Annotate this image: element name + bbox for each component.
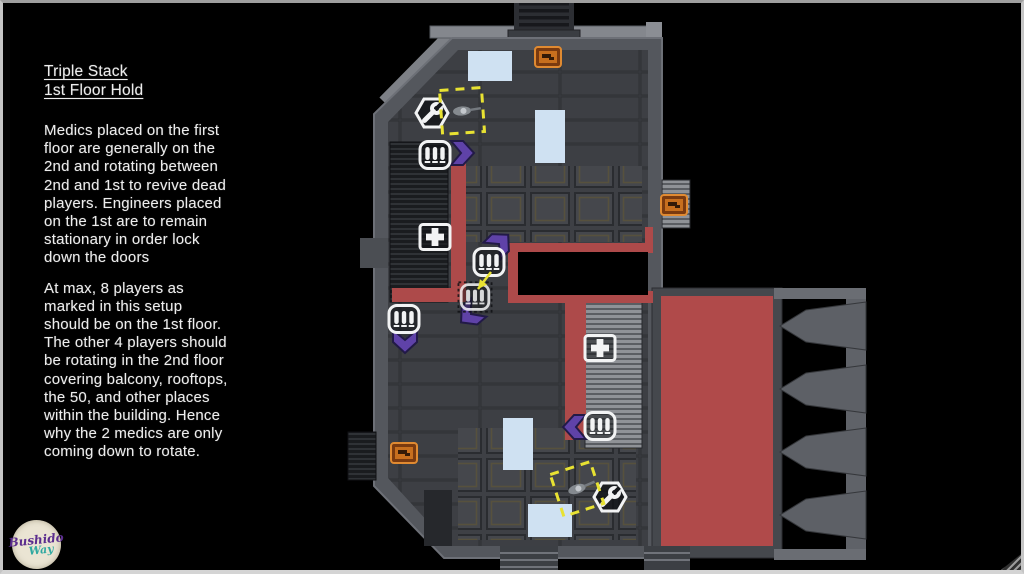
- notes-paragraph-2: At max, 8 players as marked in this setu…: [44, 280, 302, 462]
- doorway-marker: [528, 504, 572, 537]
- wall-protrusion: [360, 238, 388, 268]
- doorway-marker: [535, 110, 565, 163]
- route-highlight: [392, 288, 466, 302]
- medic-icon: [420, 225, 450, 250]
- route-highlight: [508, 243, 653, 253]
- rifleman-icon: [420, 142, 450, 169]
- notes-title-line2: 1st Floor Hold: [44, 81, 302, 100]
- rifleman-icon: [585, 413, 615, 440]
- engineer-icon: [416, 99, 448, 127]
- logo-text-line2: Way: [28, 542, 54, 558]
- ammo-crate-icon: [661, 195, 687, 215]
- route-highlight: [645, 227, 653, 253]
- notes-paragraph-1: Medics placed on the first floor are gen…: [44, 122, 302, 268]
- crate-storage-area: [466, 166, 642, 242]
- medic-icon: [585, 336, 615, 361]
- corner-pillar: [424, 490, 452, 546]
- doorway-marker: [468, 51, 512, 81]
- doorway-marker: [503, 418, 533, 470]
- strategy-notes: Triple Stack 1st Floor Hold Medics place…: [44, 62, 302, 462]
- ammo-crate-icon: [535, 47, 561, 67]
- balcony-structure: [774, 288, 866, 560]
- notes-title-line1: Triple Stack: [44, 62, 302, 81]
- red-zone: [661, 296, 773, 546]
- route-highlight: [451, 163, 466, 302]
- ammo-crate-icon: [391, 443, 417, 463]
- strategy-slide: Triple Stack 1st Floor Hold Medics place…: [0, 0, 1024, 574]
- rifleman-icon: [474, 249, 504, 276]
- stairwell-opening: [518, 252, 648, 295]
- rifleman-icon: [458, 282, 491, 311]
- rifleman-icon: [389, 306, 419, 333]
- exterior-staircase-west: [348, 432, 376, 480]
